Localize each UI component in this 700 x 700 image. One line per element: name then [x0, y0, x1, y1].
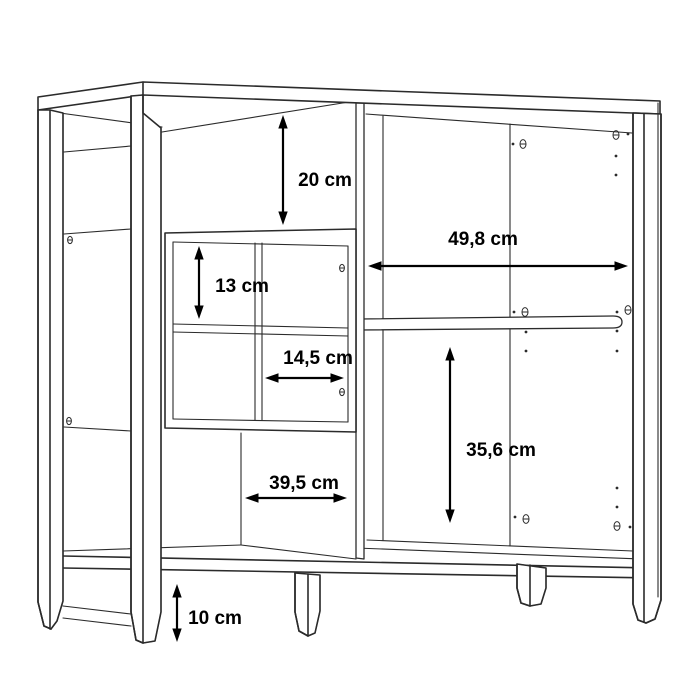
- sideboard-dimension-diagram: 20 cm 13 cm 14,5 cm 49,8 cm 35,6 cm 39,5…: [0, 0, 700, 700]
- cam-lock-icon: [625, 306, 631, 315]
- pilot-hole-icon: [615, 155, 618, 158]
- cam-lock-icon: [68, 236, 73, 243]
- pilot-hole-icon: [525, 331, 528, 334]
- arrow-down-icon: [278, 212, 287, 226]
- dimension-label-cubby-cell-height: 13 cm: [215, 276, 269, 297]
- front-left-leg: [131, 95, 161, 643]
- cam-lock-icon: [523, 515, 529, 524]
- dimension-label-right-opening-height: 35,6 cm: [466, 440, 536, 461]
- pilot-hole-icon: [512, 143, 515, 146]
- arrow-right-icon: [615, 261, 629, 270]
- pilot-hole-icon: [616, 350, 619, 353]
- left-stretcher-top-edge: [63, 606, 131, 614]
- arrow-left-icon: [368, 261, 382, 270]
- pilot-hole-icon: [616, 487, 619, 490]
- cubby-outer-frame: [165, 229, 356, 432]
- dimension-label-cubby-cell-width: 14,5 cm: [283, 348, 353, 369]
- right-opening-ceiling-edge: [366, 114, 632, 133]
- cam-lock-icon: [520, 140, 526, 149]
- cam-lock-icon: [67, 417, 72, 424]
- dimension-label-left-opening-width: 39,5 cm: [269, 473, 339, 494]
- arrow-left-icon: [245, 493, 259, 502]
- pilot-hole-icon: [627, 133, 630, 136]
- pilot-hole-icon: [514, 516, 517, 519]
- cubby-box: [165, 229, 356, 432]
- pilot-hole-icon: [615, 174, 618, 177]
- left-stretcher-bottom-edge: [63, 618, 131, 626]
- dimension-top-opening-height: 20 cm: [278, 115, 352, 225]
- pilot-hole-icon: [616, 506, 619, 509]
- right-floor-back-edge: [367, 540, 633, 551]
- arrow-right-icon: [334, 493, 348, 502]
- arrow-down-icon: [445, 510, 454, 524]
- dimension-right-opening-height: 35,6 cm: [445, 347, 536, 523]
- dimension-left-opening-width: 39,5 cm: [245, 473, 347, 503]
- dimension-label-right-opening-width: 49,8 cm: [448, 229, 518, 250]
- arrow-up-icon: [172, 584, 181, 598]
- pilot-hole-icon: [616, 330, 619, 333]
- back-left-leg: [38, 110, 63, 629]
- arrow-up-icon: [278, 115, 287, 129]
- front-right-leg: [633, 103, 661, 623]
- left-panel-top-edge: [64, 146, 131, 152]
- pilot-hole-icon: [629, 526, 632, 529]
- bottom-shelf-partition-diagonal: [241, 545, 356, 559]
- diagram-canvas: 20 cm 13 cm 14,5 cm 49,8 cm 35,6 cm 39,5…: [0, 0, 700, 700]
- arrow-down-icon: [172, 629, 181, 643]
- cam-lock-icon: [522, 308, 528, 317]
- dimension-right-opening-width: 49,8 cm: [368, 229, 628, 271]
- dimension-label-top-opening-height: 20 cm: [298, 170, 352, 191]
- arrow-up-icon: [445, 347, 454, 361]
- center-partition: [356, 103, 364, 559]
- cam-lock-icon: [614, 522, 620, 531]
- dimension-leg-height: 10 cm: [172, 584, 242, 642]
- left-opening-ceiling-edge: [162, 101, 355, 132]
- pilot-hole-icon: [525, 350, 528, 353]
- pilot-hole-icon: [616, 311, 619, 314]
- right-compartment-shelf: [360, 316, 622, 330]
- dimension-label-leg-height: 10 cm: [188, 608, 242, 629]
- left-panel-shelf-edge-lower: [64, 427, 131, 431]
- pilot-hole-icon: [513, 311, 516, 314]
- back-right-leg: [517, 564, 546, 606]
- middle-leg: [295, 573, 320, 636]
- left-panel-shelf-edge-upper: [64, 229, 131, 234]
